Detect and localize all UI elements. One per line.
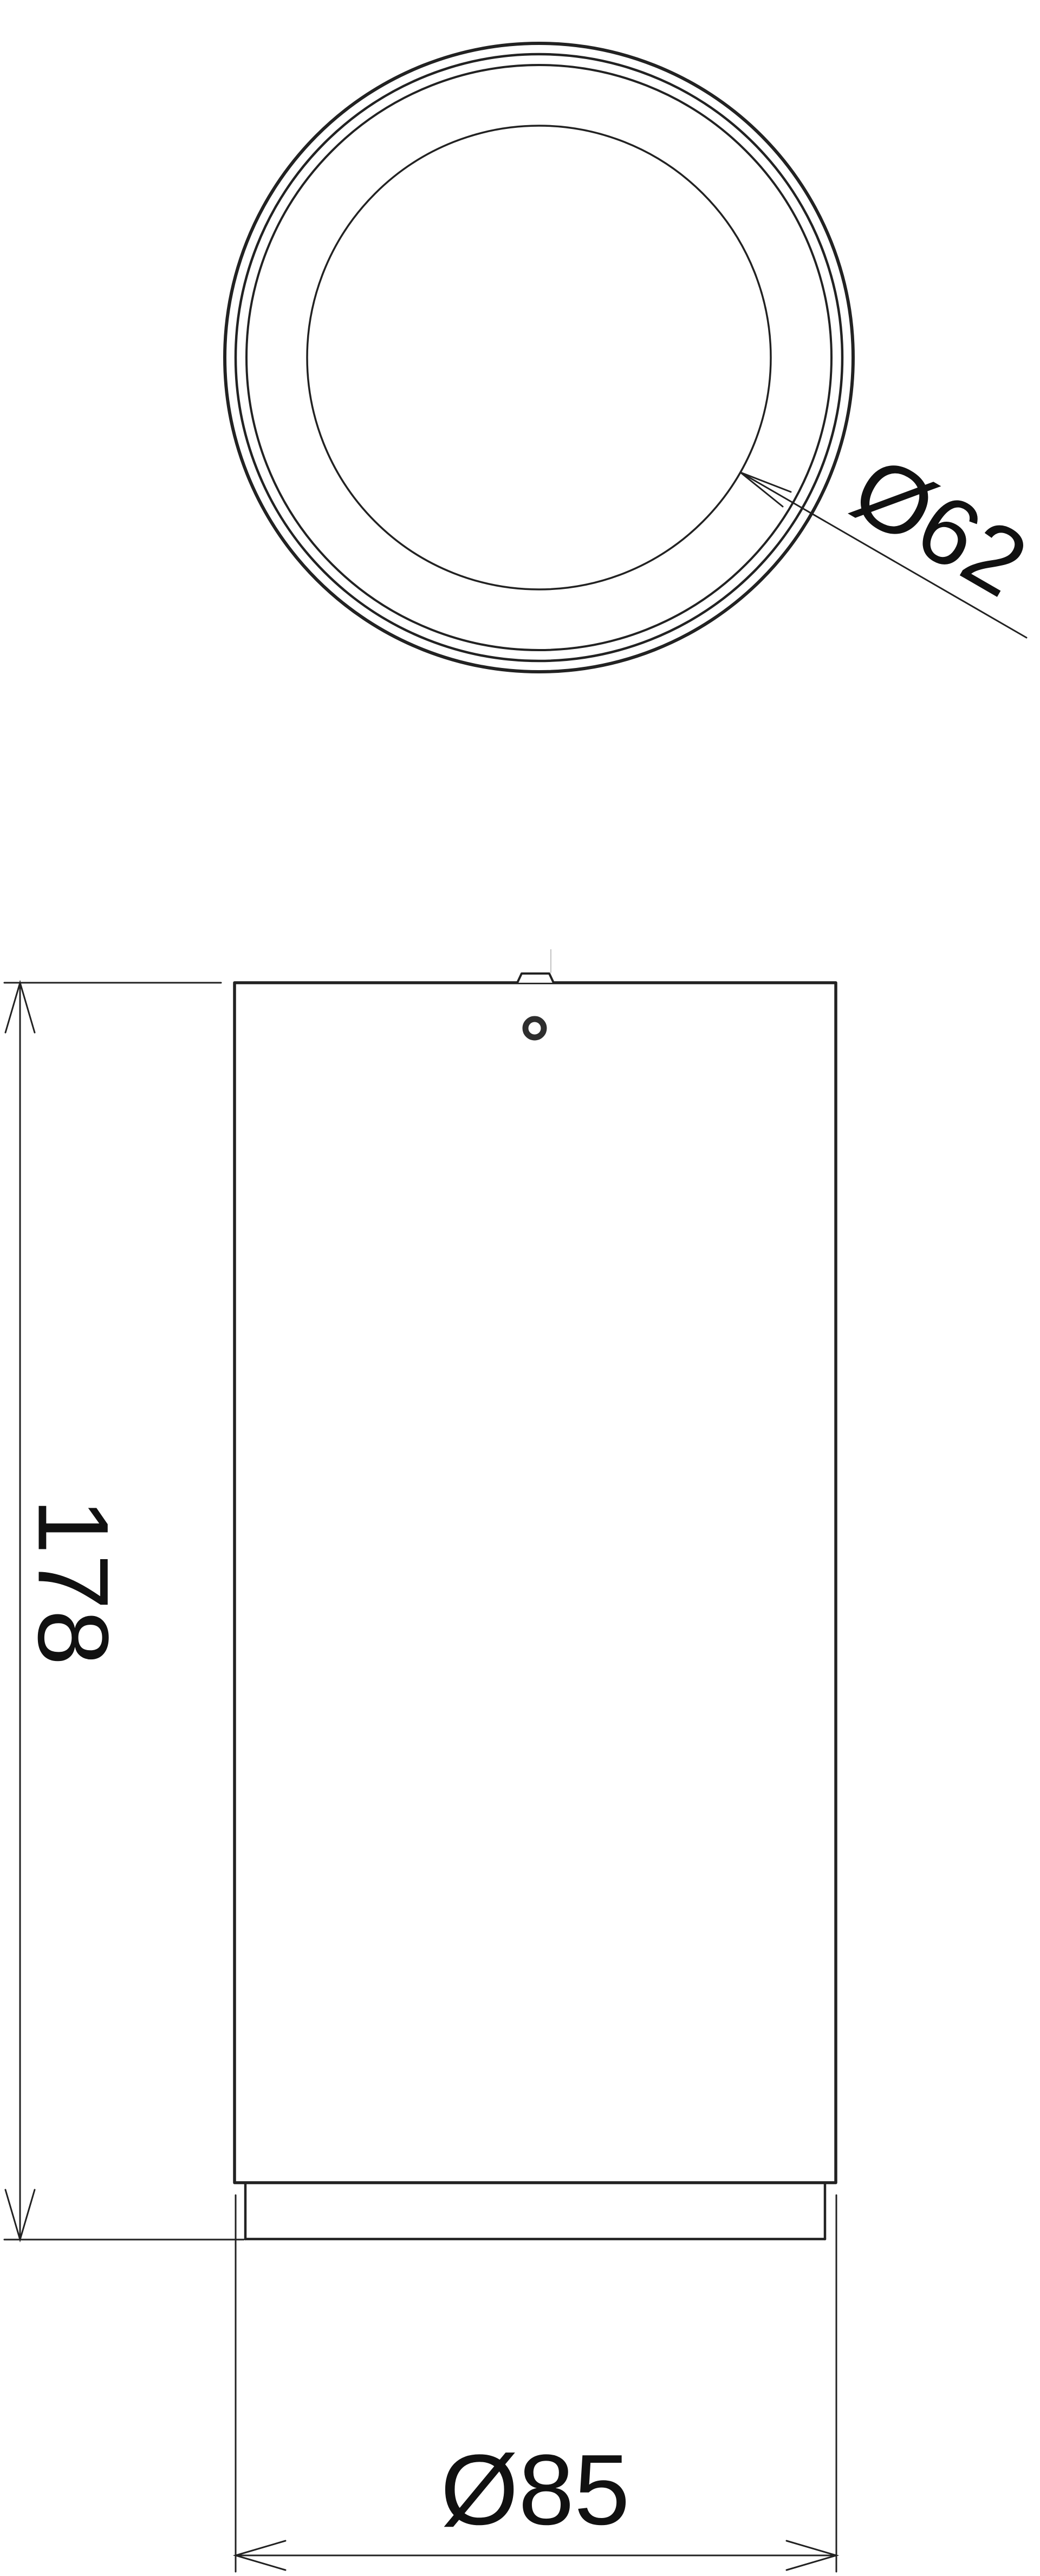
technical-drawing-canvas: 178 Ø85 Ø62 <box>0 0 1040 2576</box>
top-view <box>225 43 853 672</box>
screw-head-icon <box>525 1019 544 1037</box>
height-dimension-label: 178 <box>23 1498 123 1666</box>
inner-rim-circle <box>246 65 831 650</box>
front-view <box>235 950 836 2239</box>
drawing-linework <box>0 0 1040 2576</box>
leader-arrowhead-icon <box>740 472 791 507</box>
middle-rim-circle <box>236 54 842 661</box>
base-strip <box>245 2184 825 2239</box>
outer-rim-circle <box>225 43 853 672</box>
lens-circle <box>307 126 771 589</box>
body-outline <box>235 983 836 2183</box>
outer-diameter-dimension-label: Ø85 <box>440 2441 630 2541</box>
top-tab <box>517 974 554 983</box>
